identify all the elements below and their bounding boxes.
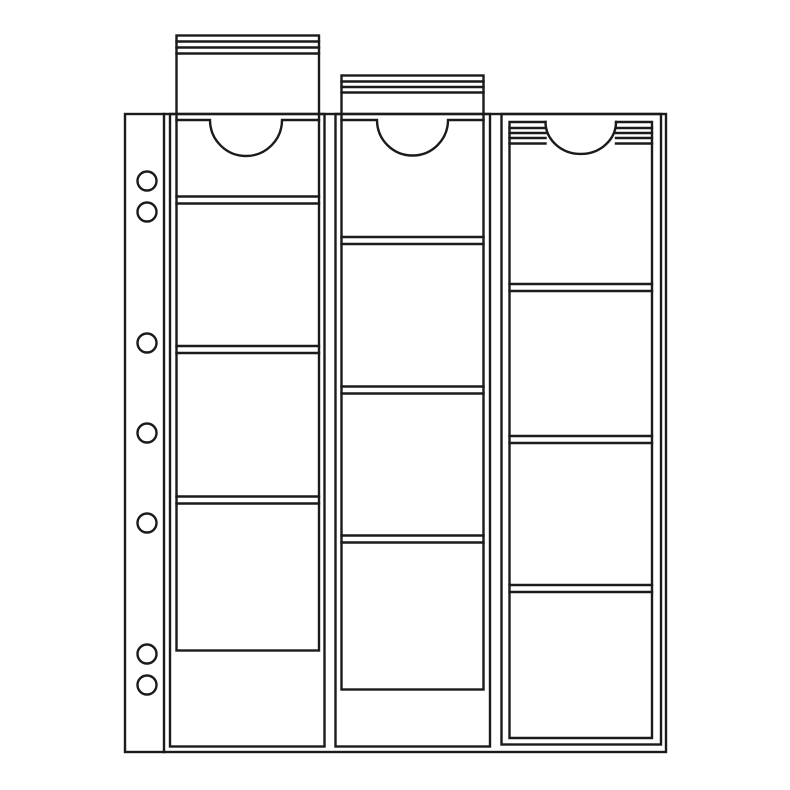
pocket-top-thumb-notch	[342, 120, 484, 155]
insert-card-2	[342, 76, 484, 690]
coin-strip-3	[502, 114, 662, 745]
sheet-outline	[125, 114, 666, 752]
product-illustration	[0, 0, 790, 790]
insert-card-1	[177, 36, 320, 651]
strip-outer-border-2	[336, 114, 491, 747]
strip-outer-border-3	[502, 114, 662, 745]
coin-strip-2	[336, 76, 491, 747]
coin-strip-1	[170, 36, 325, 747]
pocket-film-3	[510, 122, 653, 738]
thumb-notch-arc	[546, 122, 617, 154]
binder-hole	[138, 203, 157, 222]
binder-hole	[138, 514, 157, 533]
binder-hole	[138, 676, 157, 695]
coin-pocket-sheet-drawing	[0, 0, 790, 790]
binder-hole	[138, 645, 157, 664]
binder-hole	[138, 172, 157, 191]
pocket-top-thumb-notch	[177, 120, 320, 156]
binder-hole	[138, 334, 157, 353]
binder-hole	[138, 424, 157, 443]
